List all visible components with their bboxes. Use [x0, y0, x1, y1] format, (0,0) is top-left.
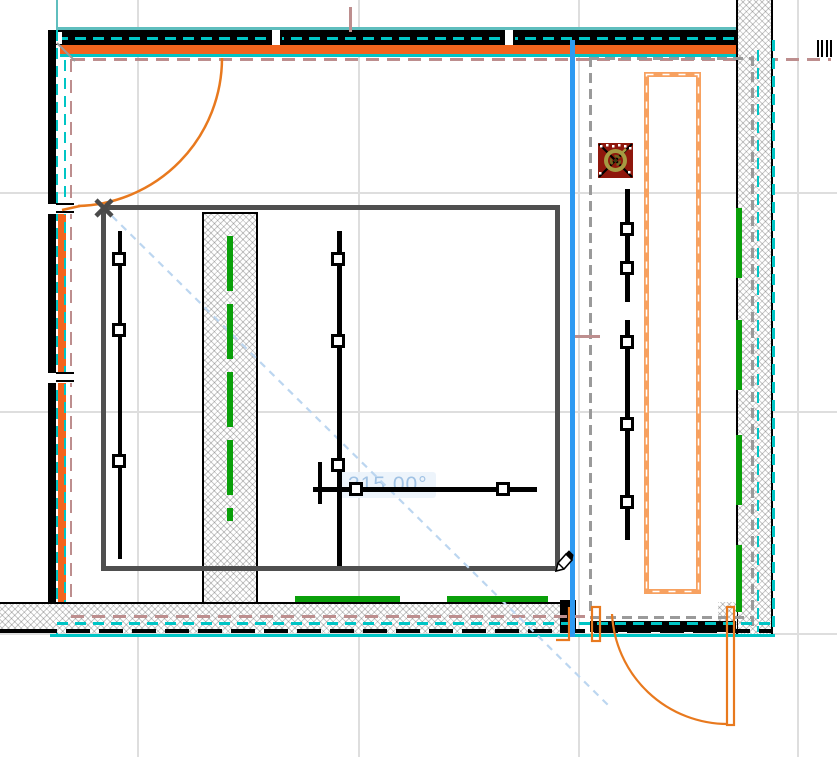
green-dash-segment[interactable] — [736, 208, 742, 278]
door-top-left[interactable] — [62, 58, 222, 210]
circuit-node[interactable] — [620, 335, 634, 349]
circuit-node[interactable] — [620, 417, 634, 431]
circuit-line[interactable] — [318, 462, 323, 504]
cad-canvas[interactable]: 315.00° — [0, 0, 837, 757]
circuit-node[interactable] — [496, 482, 510, 496]
door-bottom-right[interactable] — [556, 607, 734, 725]
circuit-node[interactable] — [331, 334, 345, 348]
door-swing-arc[interactable] — [78, 58, 222, 206]
circuit-node[interactable] — [620, 495, 634, 509]
circuit-node[interactable] — [112, 323, 126, 337]
circuit-node[interactable] — [112, 252, 126, 266]
green-dash-segment[interactable] — [736, 320, 742, 390]
pencil-cursor — [549, 543, 579, 577]
circuit-node[interactable] — [112, 454, 126, 468]
circuit-line[interactable] — [118, 231, 123, 559]
green-dash-segment[interactable] — [227, 304, 233, 359]
door-jamb[interactable] — [592, 607, 600, 641]
circuit-line[interactable] — [625, 189, 630, 302]
green-dash-segment[interactable] — [447, 596, 548, 602]
drawing-overlay — [0, 0, 837, 757]
green-dash-segment[interactable] — [295, 596, 400, 602]
closet-cabinet[interactable] — [647, 75, 699, 592]
circuit-node[interactable] — [349, 482, 363, 496]
door-swing-arc[interactable] — [612, 614, 728, 724]
circuit-node[interactable] — [620, 222, 634, 236]
door-leaf[interactable] — [62, 206, 80, 210]
green-dash-segment[interactable] — [227, 372, 233, 427]
rubber-band-diagonal — [112, 216, 608, 705]
door-jamb[interactable] — [556, 607, 569, 640]
green-dash-segment[interactable] — [227, 508, 233, 521]
green-dash-segment[interactable] — [736, 435, 742, 505]
corner-miter-line — [57, 43, 75, 61]
green-dash-segment[interactable] — [227, 236, 233, 291]
ceiling-fixture-symbol[interactable] — [598, 143, 633, 178]
circuit-node[interactable] — [620, 261, 634, 275]
circuit-node[interactable] — [331, 252, 345, 266]
green-dash-segment[interactable] — [736, 545, 742, 612]
circuit-node[interactable] — [331, 458, 345, 472]
circuit-line[interactable] — [337, 231, 342, 566]
door-leaf[interactable] — [727, 607, 734, 725]
green-dash-segment[interactable] — [227, 440, 233, 495]
